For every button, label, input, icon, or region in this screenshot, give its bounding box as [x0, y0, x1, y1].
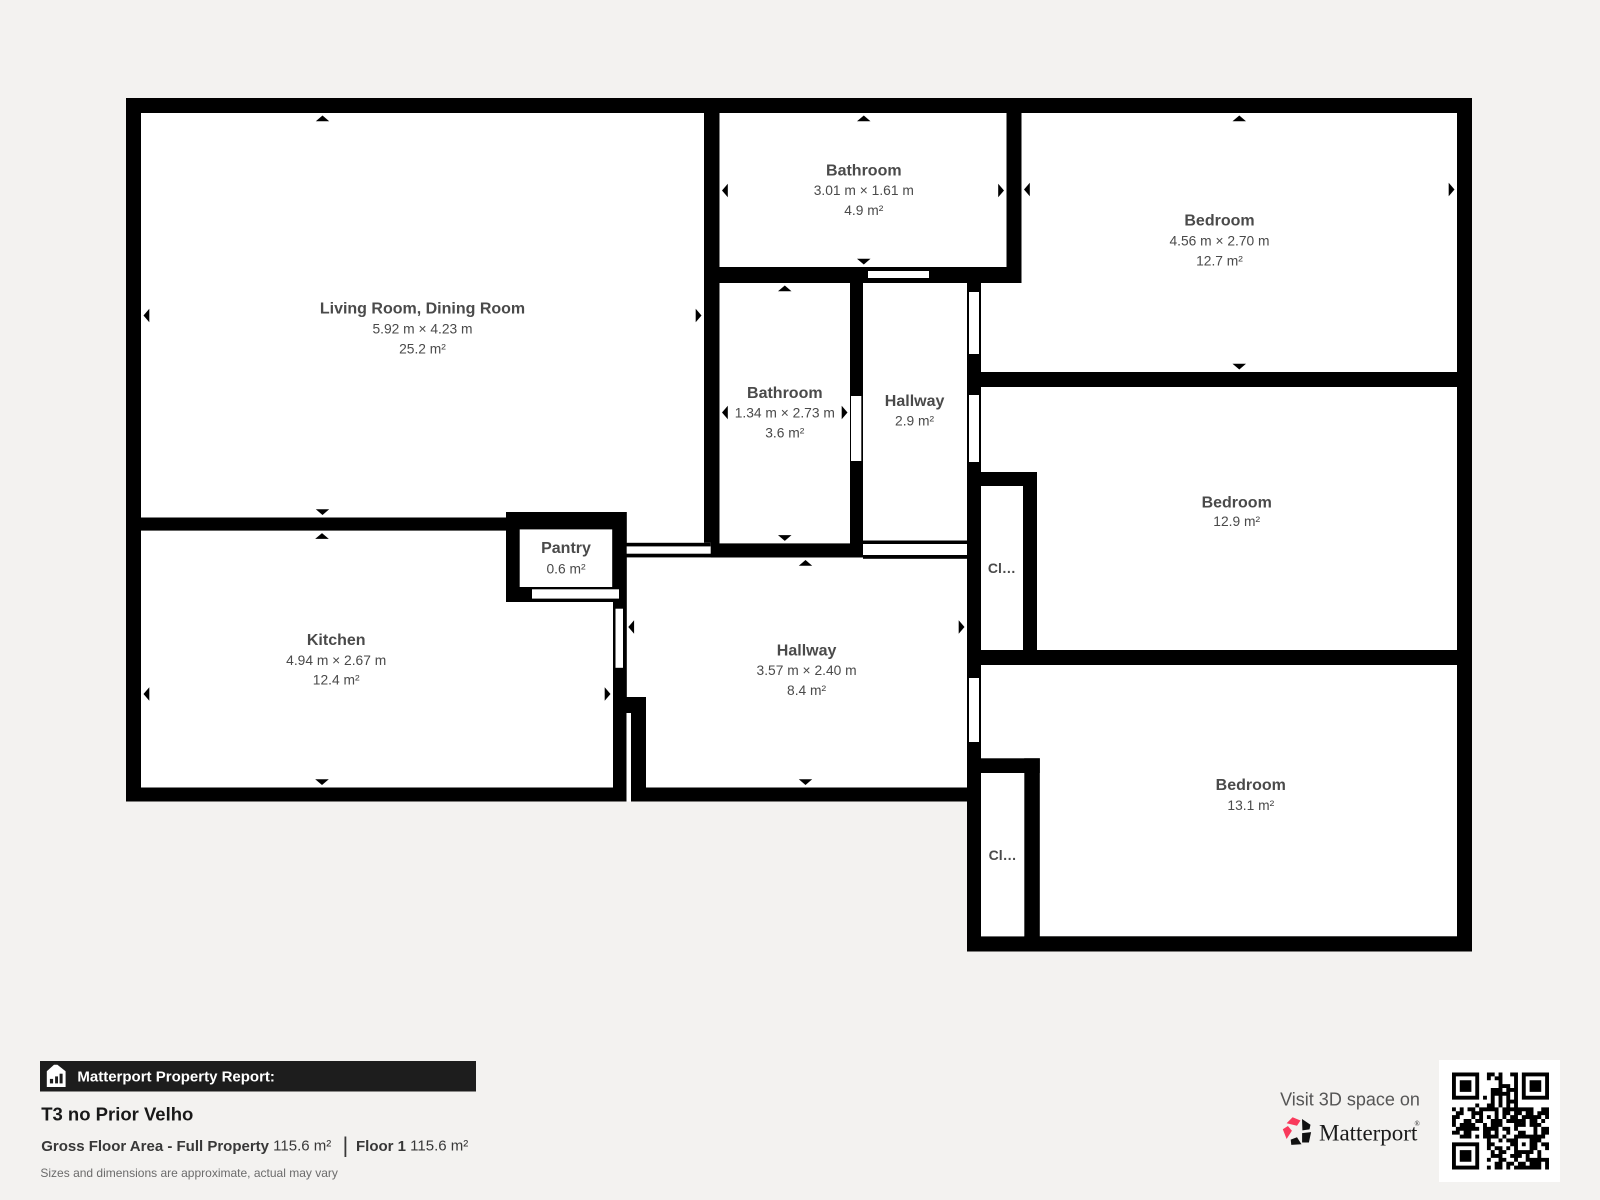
svg-text:Bedroom: Bedroom [1202, 495, 1272, 512]
svg-text:Kitchen: Kitchen [307, 632, 366, 649]
svg-text:Matterport Property Report:: Matterport Property Report: [77, 1068, 275, 1085]
svg-text:Living Room, Dining Room: Living Room, Dining Room [320, 301, 525, 318]
svg-text:5.92 m × 4.23 m: 5.92 m × 4.23 m [372, 322, 472, 337]
svg-text:25.2 m²: 25.2 m² [399, 341, 446, 356]
svg-text:Matterport: Matterport [1319, 1121, 1418, 1146]
svg-text:13.1 m²: 13.1 m² [1227, 798, 1274, 813]
svg-text:Bathroom: Bathroom [826, 162, 902, 179]
svg-text:®: ® [1415, 1120, 1421, 1128]
svg-text:0.6 m²: 0.6 m² [546, 561, 586, 576]
svg-text:Floor 1 115.6 m²: Floor 1 115.6 m² [356, 1138, 468, 1155]
svg-text:1.34 m × 2.73 m: 1.34 m × 2.73 m [735, 406, 835, 421]
svg-text:4.94 m × 2.67 m: 4.94 m × 2.67 m [286, 653, 386, 668]
svg-text:Hallway: Hallway [777, 642, 837, 659]
svg-text:12.4 m²: 12.4 m² [313, 673, 360, 688]
svg-text:3.01 m × 1.61 m: 3.01 m × 1.61 m [814, 183, 914, 198]
svg-text:12.9 m²: 12.9 m² [1213, 514, 1260, 529]
svg-text:Cl…: Cl… [988, 560, 1016, 576]
svg-text:Pantry: Pantry [541, 540, 591, 557]
svg-text:2.9 m²: 2.9 m² [895, 413, 935, 428]
svg-text:12.7 m²: 12.7 m² [1196, 253, 1243, 268]
svg-text:Hallway: Hallway [885, 393, 945, 410]
svg-text:Sizes and dimensions are appro: Sizes and dimensions are approximate, ac… [40, 1166, 337, 1180]
svg-text:4.56 m × 2.70 m: 4.56 m × 2.70 m [1169, 234, 1269, 249]
svg-text:T3 no Prior Velho: T3 no Prior Velho [41, 1103, 193, 1124]
svg-text:Visit 3D space on: Visit 3D space on [1280, 1090, 1420, 1110]
svg-text:Cl…: Cl… [989, 847, 1017, 863]
svg-text:3.6 m²: 3.6 m² [765, 425, 805, 440]
svg-text:4.9 m²: 4.9 m² [844, 203, 884, 218]
svg-text:3.57 m × 2.40 m: 3.57 m × 2.40 m [757, 663, 857, 678]
svg-text:Bathroom: Bathroom [747, 385, 823, 402]
svg-text:8.4 m²: 8.4 m² [787, 683, 827, 698]
svg-text:Bedroom: Bedroom [1184, 213, 1254, 230]
svg-text:Gross Floor Area - Full Proper: Gross Floor Area - Full Property 115.6 m… [41, 1138, 331, 1155]
svg-text:Bedroom: Bedroom [1216, 777, 1286, 794]
